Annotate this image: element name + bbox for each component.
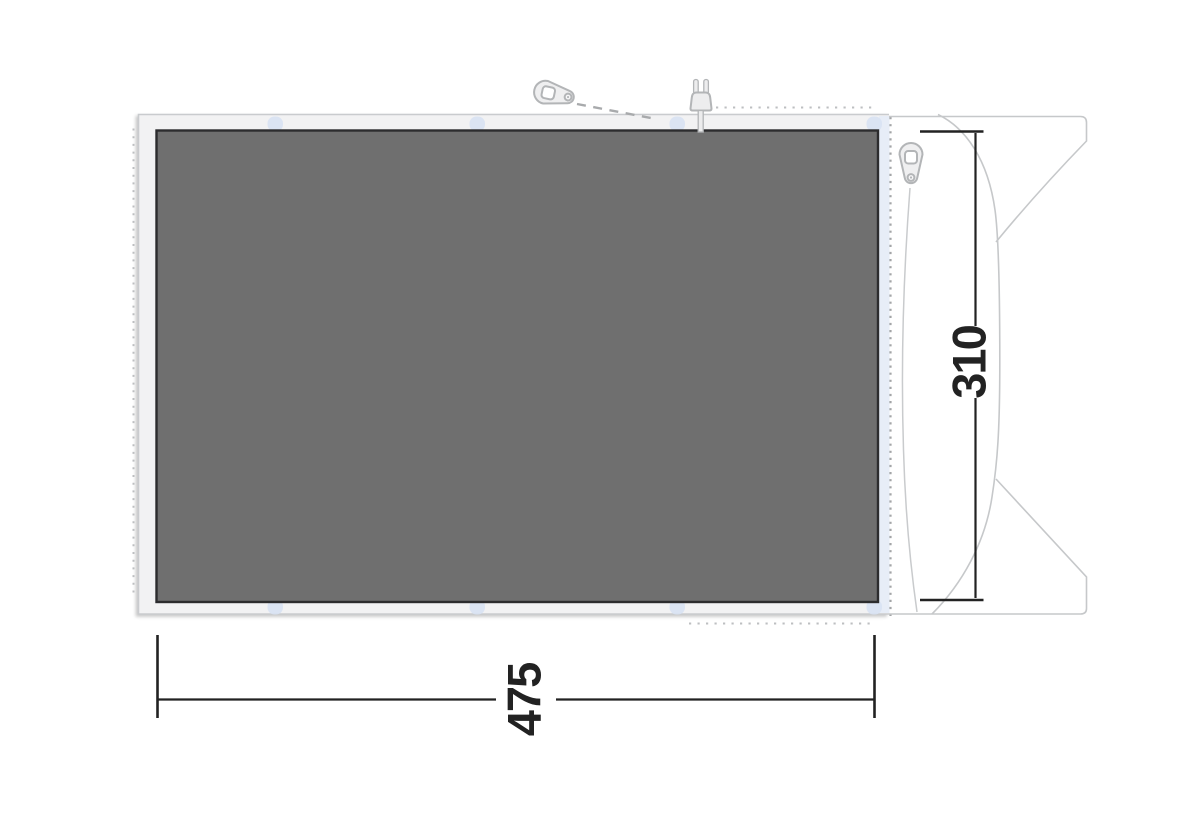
attachment-tab [867, 117, 883, 132]
zipper-pull-icon [532, 79, 576, 110]
attachment-tab [268, 117, 284, 132]
zipper-cord [902, 188, 917, 612]
attachment-tab [670, 117, 686, 132]
plug-body [691, 93, 712, 111]
footprint-diagram: 475 310 [0, 0, 1200, 816]
attachment-tab [470, 117, 486, 132]
groundsheet [157, 131, 879, 603]
diagram-canvas: 475 310 [0, 0, 1200, 816]
tent-outline-bottom [889, 479, 1087, 614]
zipper-band [879, 116, 890, 613]
zipper-pull-icon [900, 143, 923, 183]
depth-dimension-label: 310 [943, 325, 996, 398]
width-dimension-label: 475 [498, 663, 551, 736]
plug-cable [698, 111, 703, 133]
